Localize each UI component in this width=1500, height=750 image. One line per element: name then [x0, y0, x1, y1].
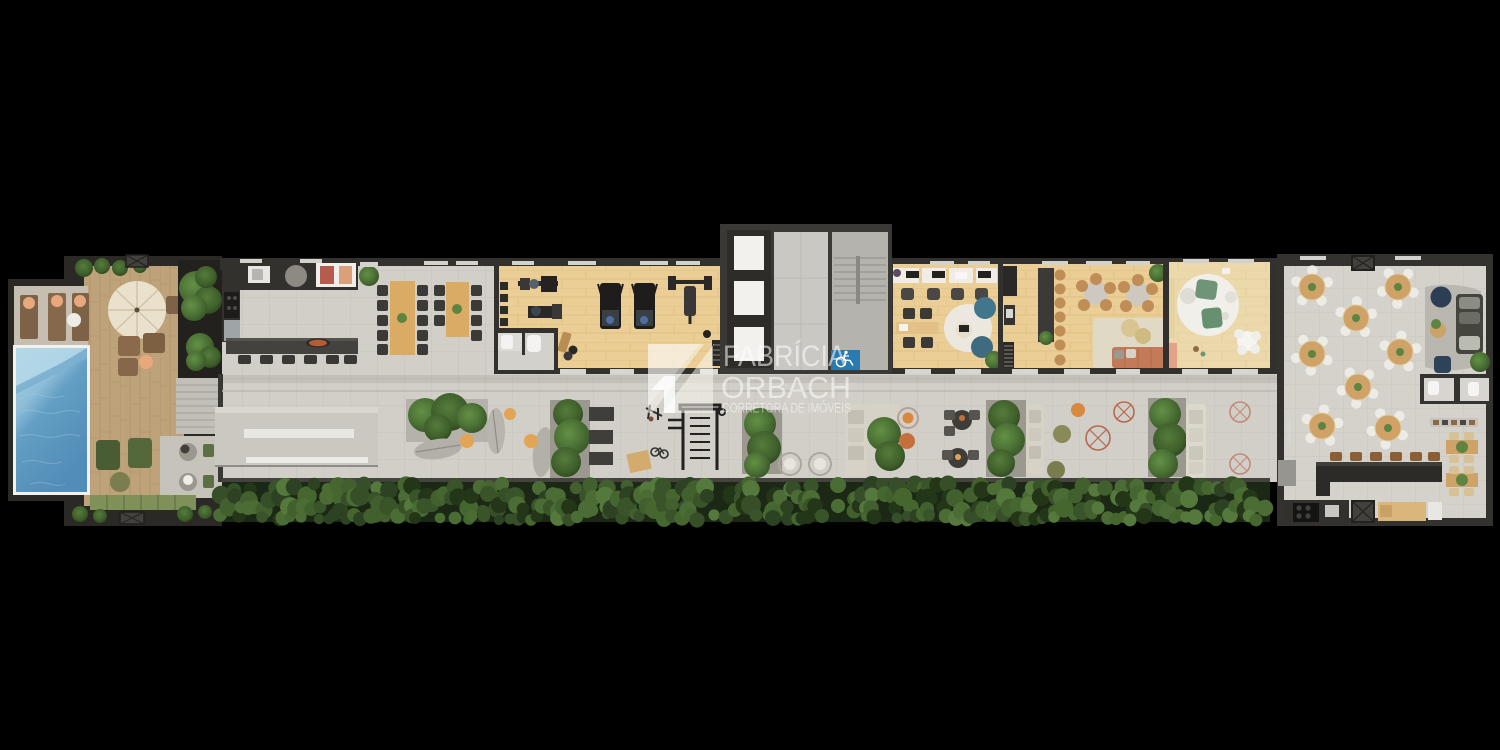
svg-text:FABRÍCIA: FABRÍCIA: [723, 340, 846, 373]
svg-text:CORRETORA DE IMÓVEIS: CORRETORA DE IMÓVEIS: [722, 401, 851, 416]
